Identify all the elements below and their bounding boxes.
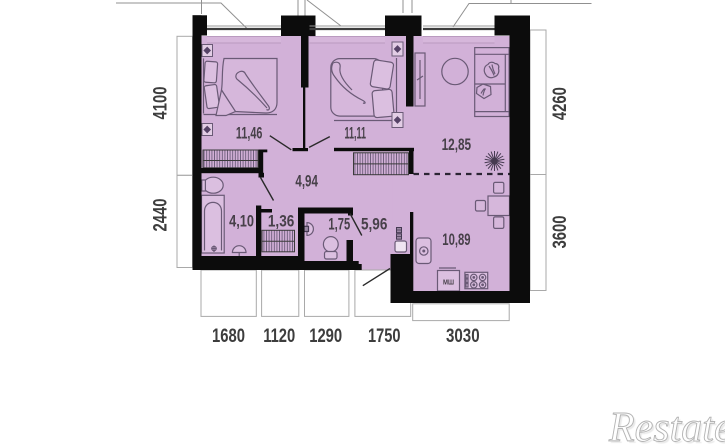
svg-text:4,94: 4,94 — [295, 172, 318, 191]
svg-text:МШ: МШ — [443, 278, 454, 287]
svg-text:1750: 1750 — [368, 326, 401, 347]
svg-text:4100: 4100 — [151, 87, 172, 120]
svg-text:11,11: 11,11 — [345, 124, 367, 143]
svg-text:1,36: 1,36 — [268, 212, 294, 231]
svg-text:1680: 1680 — [212, 326, 245, 347]
svg-text:2440: 2440 — [151, 199, 172, 232]
svg-text:1290: 1290 — [309, 326, 342, 347]
svg-text:3030: 3030 — [446, 326, 480, 347]
svg-text:11,46: 11,46 — [236, 124, 263, 143]
svg-text:4,10: 4,10 — [229, 212, 254, 231]
svg-text:4260: 4260 — [550, 87, 571, 120]
svg-text:12,85: 12,85 — [442, 135, 472, 154]
svg-text:3600: 3600 — [550, 216, 571, 249]
svg-text:10,89: 10,89 — [442, 230, 470, 249]
svg-text:1,75: 1,75 — [328, 215, 350, 234]
svg-text:5,96: 5,96 — [361, 215, 387, 234]
svg-text:1120: 1120 — [263, 326, 295, 347]
